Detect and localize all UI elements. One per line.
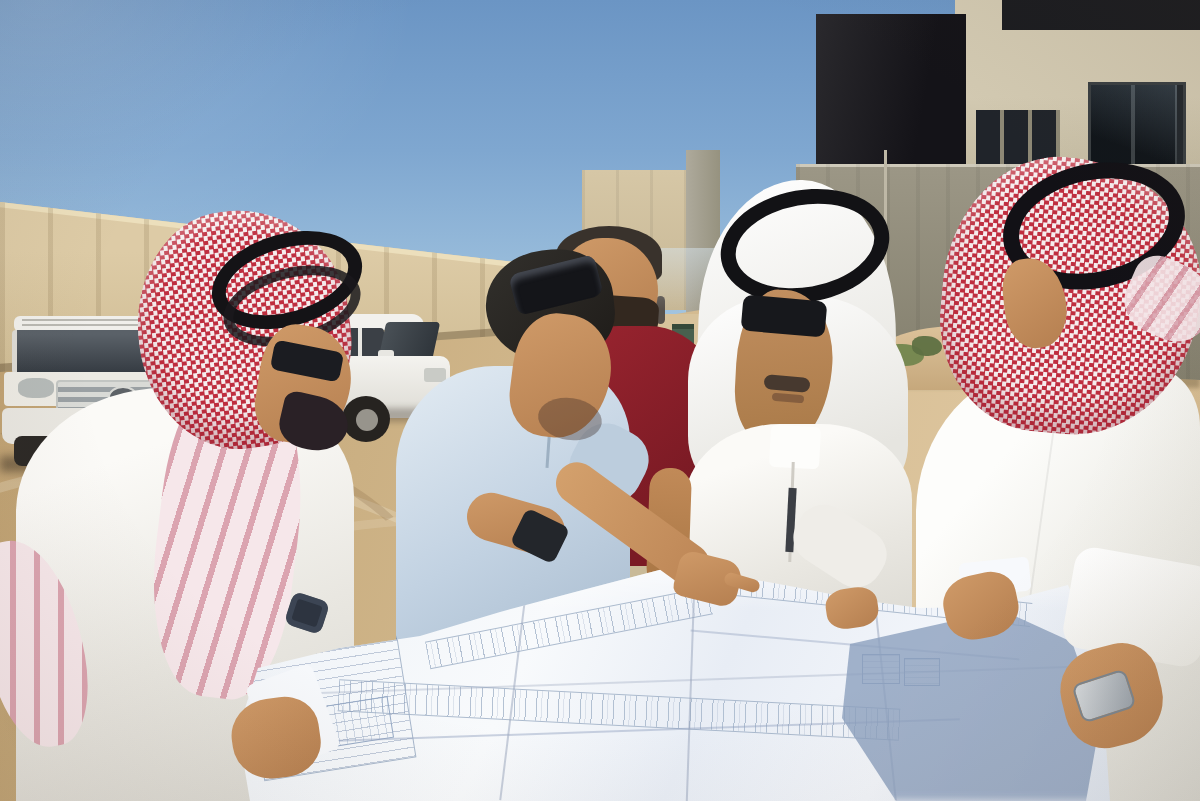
thobe-collar [769,425,821,470]
construction-site-photo [0,0,1200,801]
weeds [912,336,942,356]
suv-headlight [18,378,54,398]
villa-dark-block [816,14,966,166]
suv-wheel-rim [356,409,378,431]
villa-dark-roof-band [1002,0,1200,30]
sunglasses-icon [741,294,828,337]
villa-window-row [976,110,1060,164]
